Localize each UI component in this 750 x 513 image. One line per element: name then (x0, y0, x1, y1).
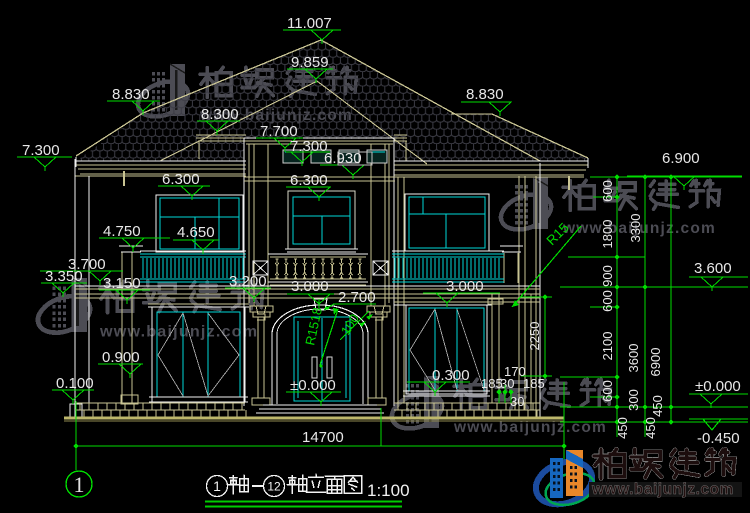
svg-text:600: 600 (600, 180, 615, 202)
svg-text:30: 30 (510, 394, 524, 409)
svg-text:1: 1 (74, 472, 85, 497)
svg-text:www.baijunjz.com: www.baijunjz.com (99, 322, 258, 340)
svg-text:6900: 6900 (648, 348, 663, 377)
svg-text:1:100: 1:100 (367, 481, 410, 500)
svg-text:12: 12 (267, 480, 281, 494)
svg-text:600: 600 (600, 380, 615, 402)
svg-text:2100: 2100 (600, 332, 615, 361)
svg-text:170: 170 (504, 364, 526, 379)
svg-text:900: 900 (600, 265, 615, 287)
svg-text:6.900: 6.900 (662, 150, 700, 167)
svg-text:±0.000: ±0.000 (695, 378, 741, 395)
svg-text:300: 300 (626, 389, 641, 411)
svg-text:600: 600 (600, 290, 615, 312)
svg-text:450: 450 (615, 417, 630, 439)
svg-text:1800: 1800 (600, 220, 615, 249)
svg-text:185: 185 (523, 376, 545, 391)
svg-text:450: 450 (650, 395, 665, 417)
svg-text:3600: 3600 (626, 344, 641, 373)
svg-text:3300: 3300 (628, 214, 643, 243)
svg-text:4.650: 4.650 (177, 224, 215, 241)
svg-text:2250: 2250 (527, 322, 542, 351)
svg-text:-0.450: -0.450 (697, 430, 740, 447)
svg-text:3.000: 3.000 (291, 278, 329, 295)
svg-text:3.600: 3.600 (694, 260, 732, 277)
svg-text:1: 1 (213, 478, 221, 494)
svg-text:www.baijunjz.com: www.baijunjz.com (591, 481, 734, 498)
svg-text:450: 450 (643, 417, 658, 439)
svg-text:8.830: 8.830 (466, 86, 504, 103)
svg-text:14700: 14700 (302, 429, 344, 446)
